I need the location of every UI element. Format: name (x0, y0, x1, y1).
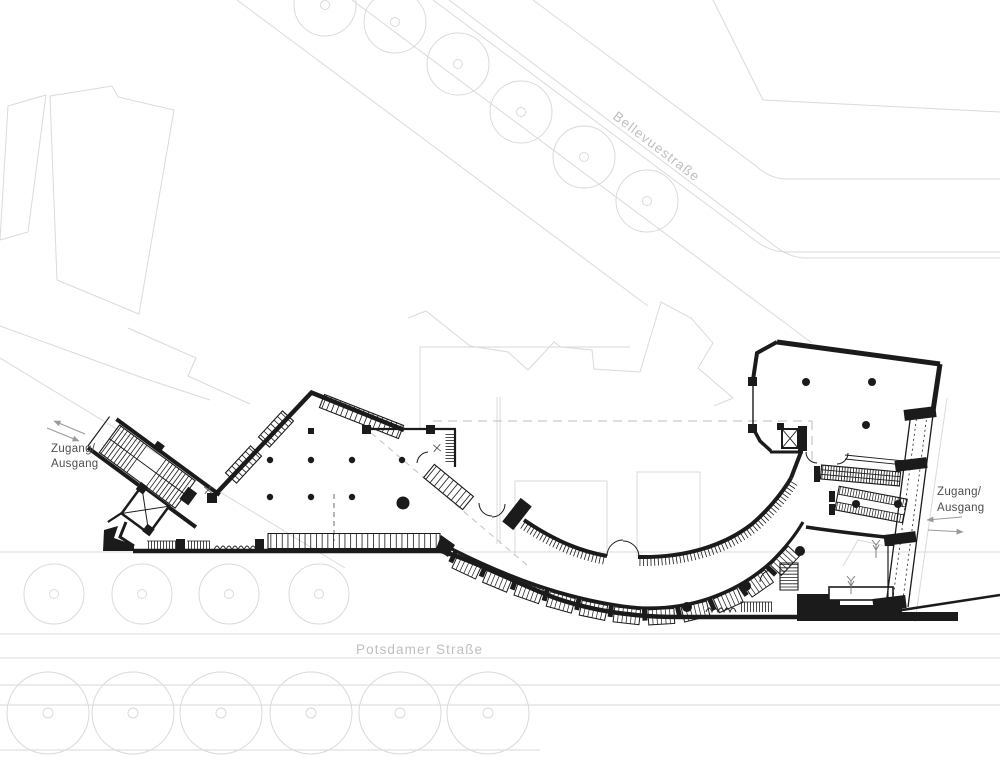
entrance-label-right-line2: Ausgang (937, 502, 985, 514)
left-entrance-stair (59, 409, 224, 565)
room-outline (420, 347, 630, 430)
building-outline (0, 95, 46, 240)
entrance-label-right-line1: Zugang/ (937, 486, 982, 498)
street-line (352, 0, 812, 343)
street-line (433, 0, 1000, 252)
entrance-arrows-left (47, 421, 85, 441)
column-dot (868, 378, 876, 386)
entrance-arrows-right (927, 517, 963, 532)
elevator-shaft-x-icon (118, 482, 173, 537)
background-site-outlines (0, 0, 1000, 750)
street-label-bellevuestrasse: Bellevuestraße (610, 108, 703, 184)
column-dot (862, 421, 870, 429)
street-line (713, 0, 1000, 112)
column-dot (802, 378, 810, 386)
door-swing-icon (417, 452, 428, 463)
site-plan-canvas: Bellevuestraße Potsdamer Straße (0, 0, 1000, 757)
bike-stand-arcs (706, 608, 736, 612)
building-outline (408, 302, 733, 406)
street-trees (7, 0, 678, 754)
entrance-label-right: Zugang/ Ausgang (937, 486, 985, 514)
plant-symbol-icon (847, 540, 880, 594)
entrance-ramp (872, 406, 936, 612)
entrance-label-left: Zugang/ Ausgang (51, 443, 99, 470)
wall-pier (748, 377, 757, 386)
street-line (533, 0, 1000, 179)
room-outline (497, 397, 500, 544)
wall-corner (103, 526, 134, 551)
wall-pier (426, 425, 435, 434)
floor-plan (59, 342, 1000, 625)
column-dot (852, 500, 860, 508)
room-outline (637, 472, 700, 556)
column-grid (267, 457, 410, 510)
building-outline (0, 326, 210, 400)
door-swing-icon (607, 540, 639, 557)
entrance-label-left-line1: Zugang/ (51, 443, 96, 455)
door-swing-icon (479, 503, 505, 517)
street-label-potsdamer-strasse: Potsdamer Straße (356, 642, 483, 657)
elevator-shaft-x-icon (777, 423, 807, 451)
large-column-dot (397, 497, 410, 510)
entrance-label-left-line2: Ausgang (51, 458, 99, 470)
room-outline (515, 481, 607, 556)
site-plan-page: Bellevuestraße Potsdamer Straße (0, 0, 1000, 757)
wall-pier (207, 493, 217, 503)
building-outline (50, 86, 174, 314)
triangle-hall (207, 392, 456, 503)
column-square (308, 428, 314, 434)
curved-corridor (133, 478, 1000, 621)
